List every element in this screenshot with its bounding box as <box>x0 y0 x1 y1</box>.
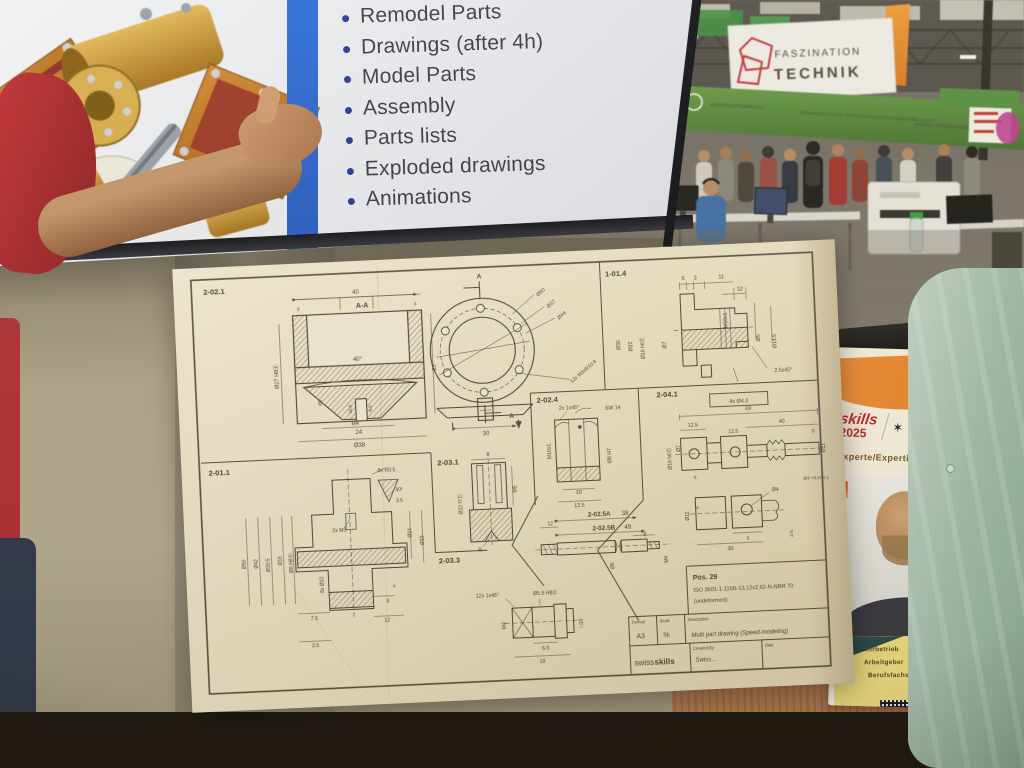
skills-year: 2025 <box>839 426 877 440</box>
bullet-dot <box>343 45 350 52</box>
bullet-dot <box>345 106 352 113</box>
swissskills-logo-light: swiss <box>634 658 654 668</box>
dim-label: 30 <box>483 431 491 437</box>
cell-id-label: 2-03.1 <box>437 457 459 467</box>
dim-label: 10 <box>576 490 582 496</box>
dim-label: Ø8 H7 <box>607 448 614 463</box>
expo-photo-scene: FASZINATION TECHNIK KONSTRUKTEUR/IN EFZ … <box>0 0 1024 768</box>
holder-teal-shirt <box>908 268 1024 768</box>
dim-label: M10x1 <box>723 312 730 328</box>
format-value: A3 <box>636 633 645 640</box>
dim-label: Ø22 f7Ⓔ <box>457 494 465 514</box>
dim-label: Ø42 <box>253 559 259 569</box>
bullet-dot <box>344 76 351 83</box>
slide-bullet: Animations <box>347 182 548 219</box>
dim-label: 8 <box>486 452 489 458</box>
dim-label: Ø16 <box>277 556 283 566</box>
section-label: A-A <box>356 302 369 310</box>
description-label: Description <box>688 616 710 622</box>
dim-label: 49 <box>624 525 632 531</box>
dim-label: 3 <box>694 275 697 281</box>
dim-label: 2.5x45° <box>774 367 792 374</box>
dim-label: 8.5 <box>368 405 373 412</box>
section-label: A <box>509 413 514 420</box>
dim-label: Ø30.5 <box>265 558 272 572</box>
dim-label: R <box>478 547 482 553</box>
dim-label: 7.5 <box>311 616 319 622</box>
scale-value: % <box>663 632 670 639</box>
green-wall-sign <box>939 88 1020 109</box>
date-label: Date <box>765 642 775 647</box>
dim-label: 9 <box>386 599 389 605</box>
dim-label: 4x Ø4.3 <box>729 398 748 405</box>
dim-label: 40 <box>352 290 360 296</box>
banner-line2: TECHNIK <box>774 63 862 83</box>
dim-label: 12x 1x45° <box>476 593 499 600</box>
bullet-text: Drawings (after 4h) <box>361 29 544 59</box>
bullet-dot <box>346 137 353 144</box>
poster-role-label: Experte/Expertin <box>837 451 915 463</box>
paper-sheet <box>172 239 854 713</box>
dim-label: 12.5 <box>574 503 585 509</box>
dim-label: SW 14 <box>605 405 621 412</box>
dim-label: 12.5 <box>728 429 738 435</box>
dim-label: 40 <box>779 419 785 425</box>
dim-label: Ø8 H8Ⓔ <box>287 553 295 573</box>
bullet-dot <box>347 167 354 174</box>
dim-label: Ø50 <box>242 559 248 569</box>
dim-label: 8x R0.5 <box>378 467 396 474</box>
bullet-text: Assembly <box>363 93 456 120</box>
cell-id-label: 2-02.5A <box>588 511 611 519</box>
swissskills-logo-bold: skills <box>654 657 675 667</box>
dim-label: Ø22 <box>628 341 634 351</box>
presenter <box>0 0 340 280</box>
dim-label: 2.5 <box>789 530 795 537</box>
dim-label: 40° <box>353 357 363 363</box>
dim-label: Ø19 <box>420 535 426 545</box>
dim-label: 5 <box>682 276 685 282</box>
pos-line1: Pos. 29 <box>693 574 718 582</box>
dim-label: M4 <box>351 421 359 427</box>
dim-label: Ø11 <box>821 443 827 453</box>
dim-label: 2x M3 <box>332 528 346 535</box>
shirt-button <box>946 464 955 473</box>
dim-label: 38 <box>622 511 630 517</box>
cell-id-label: 2-04.1 <box>656 389 678 399</box>
bullet-dot <box>342 15 349 22</box>
dim-label: Ø38 <box>354 443 366 450</box>
swissmem-star-icon: ✶ <box>892 420 903 433</box>
dim-label: Ø7 <box>662 341 668 348</box>
bullet-text: Remodel Parts <box>360 0 502 28</box>
scale-label: Scale <box>660 618 671 624</box>
format-label: Format <box>632 619 646 625</box>
cell-id-label: 2-02.5B <box>592 524 615 532</box>
dim-label: Ø7 <box>676 445 682 452</box>
dim-label: 69 <box>745 406 751 412</box>
dim-label: Ø2 <box>317 399 323 406</box>
brand-divider <box>881 413 889 440</box>
dim-label: Ø4 <box>772 487 779 493</box>
dim-label: □10 <box>579 618 585 627</box>
dim-label: 12 <box>384 618 390 624</box>
dim-label: 2x 1x45° <box>559 405 580 412</box>
cell-id-label: 2-03.3 <box>439 556 461 566</box>
bullet-text: Animations <box>365 184 472 211</box>
dim-label: 6.5 <box>542 646 550 652</box>
dim-label: M4 <box>502 622 508 629</box>
dim-label: Ø16 h6Ⓔ <box>666 448 674 470</box>
created-by-label: Created By <box>693 645 715 651</box>
dim-label: Ø11 <box>685 511 691 521</box>
dim-label: 8 <box>643 532 646 538</box>
dim-label: M5 <box>512 485 518 492</box>
dim-label: 3.5 <box>396 498 403 504</box>
dim-label: 3.5 <box>312 643 320 649</box>
cell-id-label: 1-01.4 <box>605 269 627 279</box>
dim-label: Ø30 <box>616 340 622 350</box>
dim-label: M4 <box>664 555 670 562</box>
dim-label: 12 <box>547 521 553 527</box>
dim-label: 12 <box>737 286 743 292</box>
dim-label: 19 <box>539 659 545 665</box>
dim-label: Ø14.5 <box>772 334 779 349</box>
section-label: A <box>476 273 481 280</box>
drawing-paper: 2-02.1 40 A-A 3 3 Ø27 H8Ⓔ 40 <box>172 239 854 713</box>
cell-id-label: 2-01.1 <box>208 468 230 478</box>
dim-label: 8x Ø10 <box>319 576 326 593</box>
bullet-text: Exploded drawings <box>364 151 546 181</box>
dim-label: 10.8 <box>348 404 353 413</box>
bullet-text: Model Parts <box>362 62 477 90</box>
skills-logo-text: skills <box>839 411 879 427</box>
cell-id-label: 2-02.1 <box>203 287 225 297</box>
bullet-dot <box>348 198 355 205</box>
bullet-text: Parts lists <box>364 124 458 151</box>
shirt-folds <box>908 268 1024 768</box>
cell-id-label: 2-02.4 <box>536 395 558 405</box>
dim-label: Ø14 <box>407 528 413 538</box>
dim-label: M10x1 <box>547 443 554 459</box>
dim-label: 24 <box>355 430 363 436</box>
faszination-technik-banner: FASZINATION TECHNIK <box>728 18 896 102</box>
magenta-balloon <box>996 112 1020 144</box>
dim-label: 30 <box>727 546 733 552</box>
dim-label: Ø6 <box>610 562 616 569</box>
slide-bullet-list: Remodel Parts Drawings (after 4h) Model … <box>342 0 549 219</box>
dim-label: 12.5 <box>688 423 698 429</box>
dim-label: Ø5 <box>756 334 762 341</box>
created-by-value: Swiss… <box>695 657 717 664</box>
dim-label: 60° <box>395 487 403 493</box>
dim-label: 11 <box>718 274 724 280</box>
